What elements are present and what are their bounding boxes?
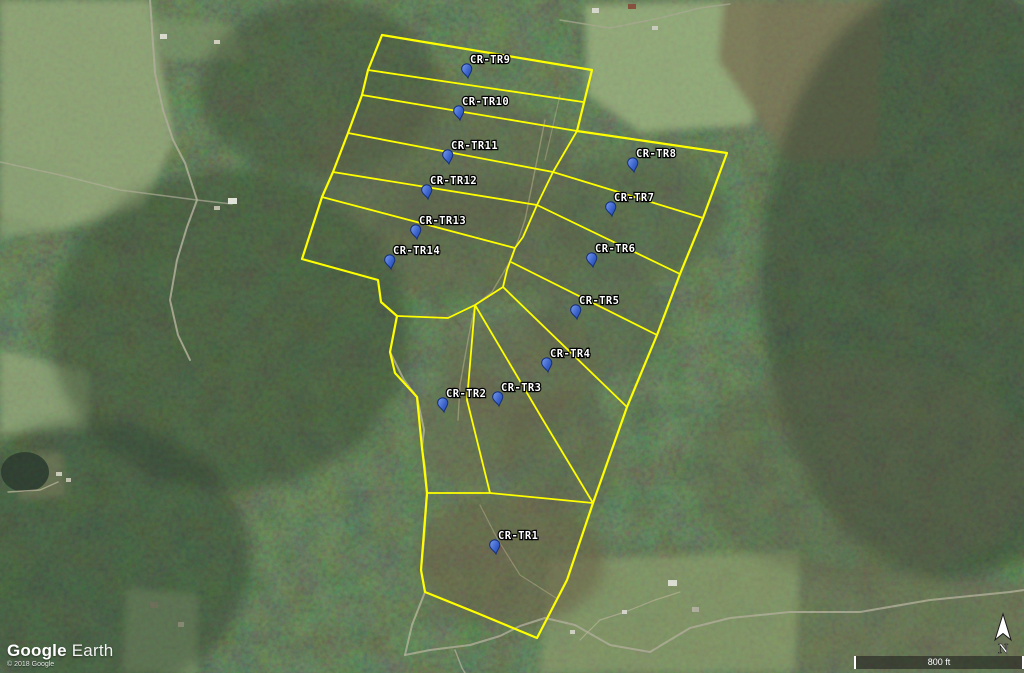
placemark-label: CR-TR12 [430, 175, 477, 187]
north-letter: N [998, 642, 1008, 656]
north-arrow-icon [995, 614, 1011, 640]
logo-google: Google [7, 641, 67, 660]
placemark-label: CR-TR2 [446, 388, 486, 400]
placemark-label: CR-TR4 [550, 348, 590, 360]
scale-bar: 800 ft [854, 656, 1024, 669]
placemark-label: CR-TR14 [393, 245, 440, 257]
logo-earth: Earth [72, 641, 114, 660]
copyright-text: © 2018 Google [7, 661, 54, 668]
placemark-label: CR-TR10 [462, 96, 509, 108]
google-earth-logo: GoogleEarth [7, 641, 113, 661]
placemark-label: CR-TR1 [498, 530, 538, 542]
google-earth-viewport: CR-TR1CR-TR2CR-TR3CR-TR4CR-TR5CR-TR6CR-T… [0, 0, 1024, 673]
north-indicator: N [984, 612, 1022, 656]
unifying-grain [0, 0, 1024, 673]
map-canvas[interactable]: CR-TR1CR-TR2CR-TR3CR-TR4CR-TR5CR-TR6CR-T… [0, 0, 1024, 673]
placemark-label: CR-TR6 [595, 243, 635, 255]
placemark-label: CR-TR3 [501, 382, 541, 394]
placemark-label: CR-TR7 [614, 192, 654, 204]
scale-label: 800 ft [928, 658, 951, 667]
placemark-label: CR-TR9 [470, 54, 510, 66]
placemark-label: CR-TR13 [419, 215, 466, 227]
placemark-label: CR-TR8 [636, 148, 676, 160]
placemark-label: CR-TR11 [451, 140, 498, 152]
placemark-label: CR-TR5 [579, 295, 619, 307]
